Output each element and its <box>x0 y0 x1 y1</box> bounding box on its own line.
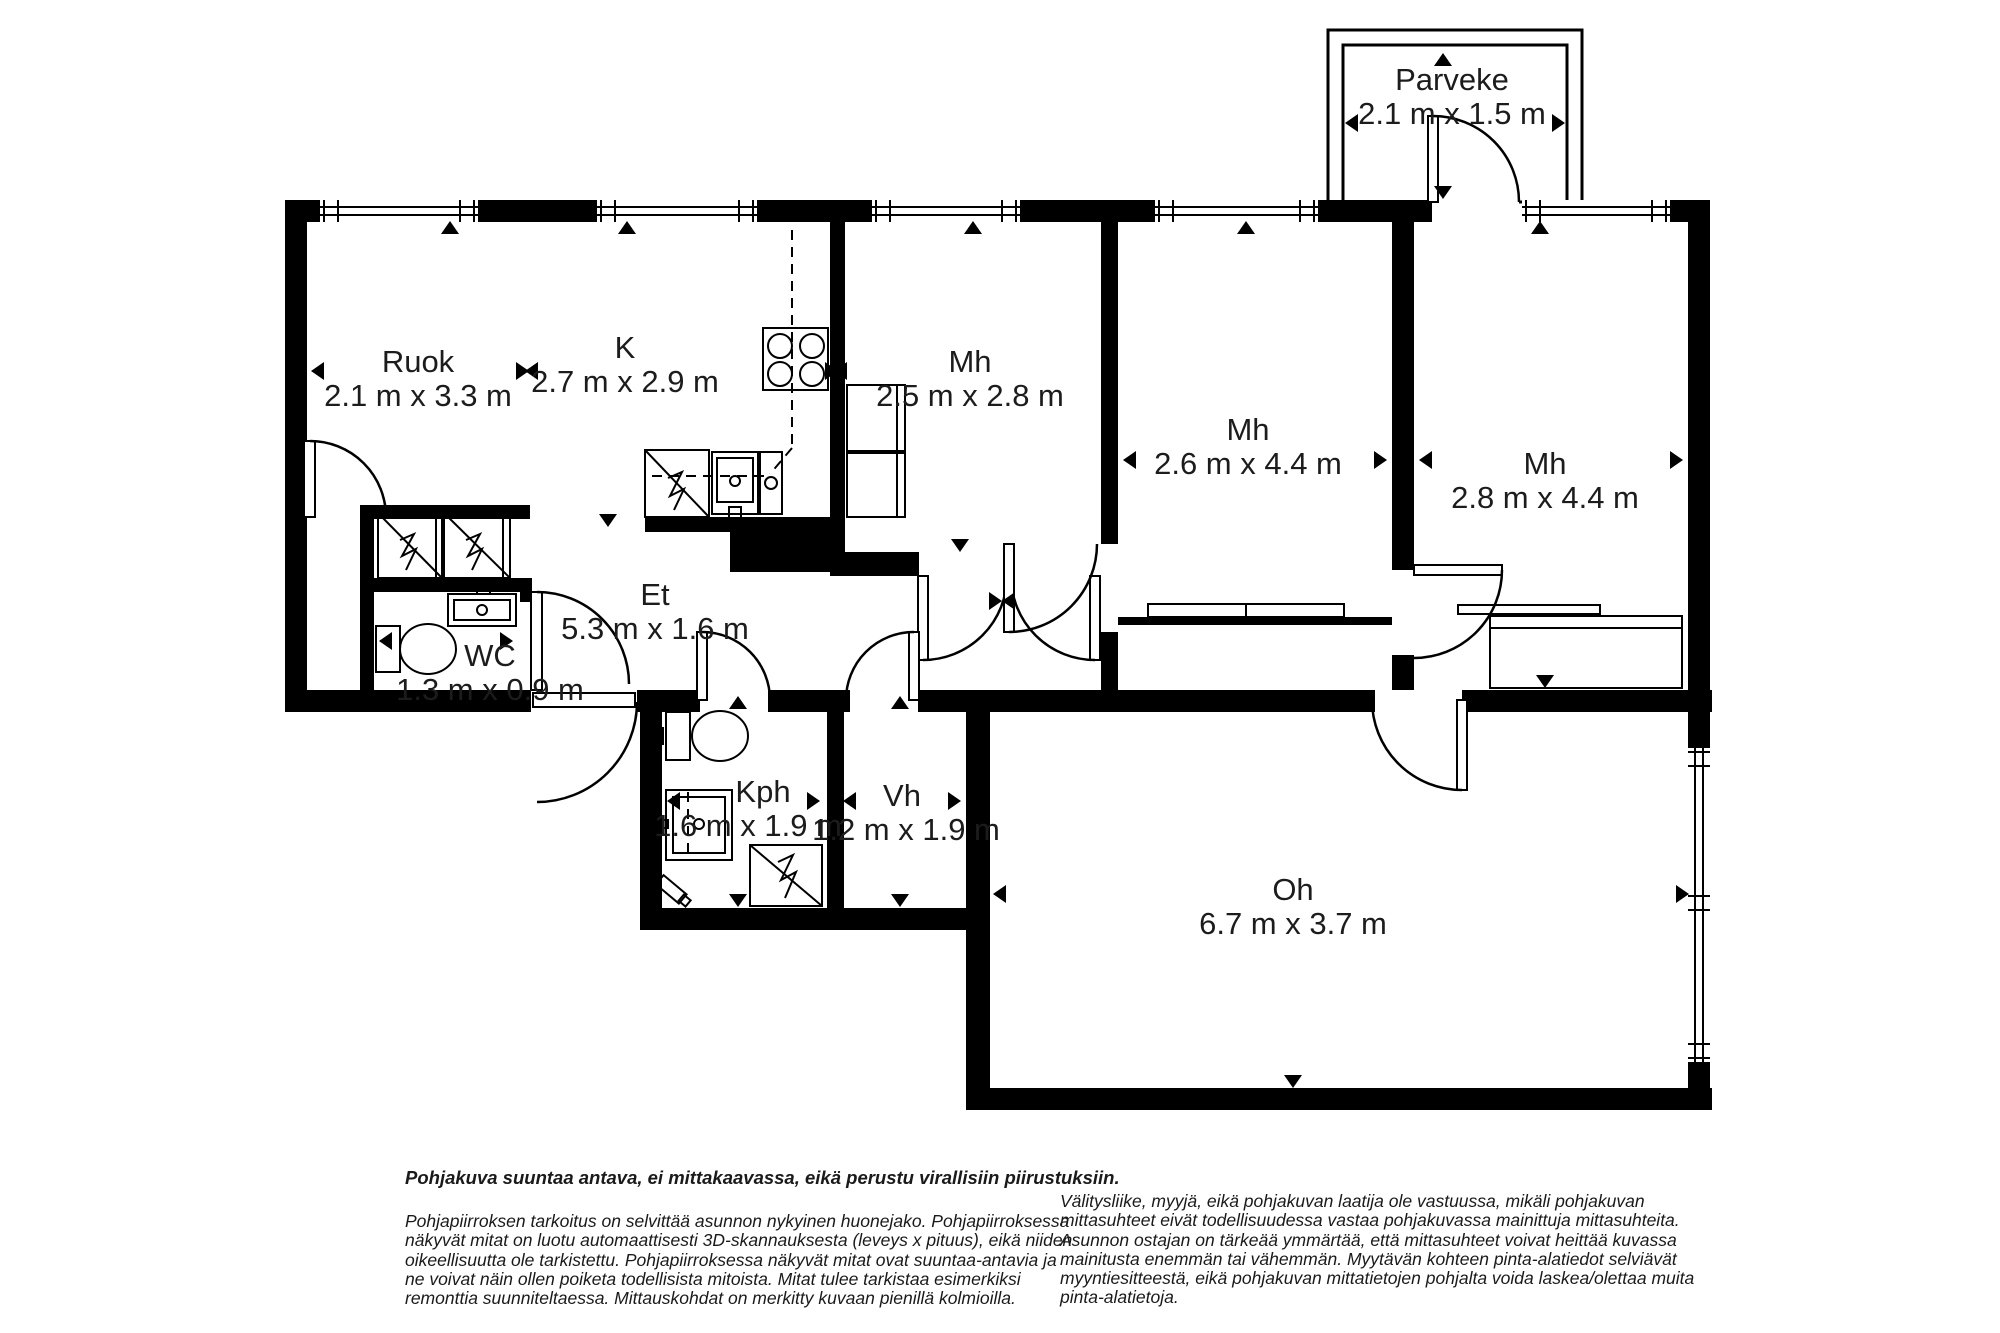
toilet-icon <box>656 711 748 761</box>
svg-text:2.6 m x 4.4 m: 2.6 m x 4.4 m <box>1154 446 1342 481</box>
svg-text:2.7 m x 2.9 m: 2.7 m x 2.9 m <box>531 364 719 399</box>
disclaimer-line: mainitusta enemmän tai vähemmän. Myytävä… <box>1060 1250 1694 1269</box>
room-label-k: K 2.7 m x 2.9 m <box>531 330 719 399</box>
svg-text:Mh: Mh <box>948 344 991 379</box>
svg-text:Vh: Vh <box>883 778 921 813</box>
measure-triangle-icon <box>599 514 617 527</box>
measure-triangle-icon <box>1345 114 1358 132</box>
disclaimer-line: myyntiesitteestä, eikä pohjakuvan mittat… <box>1060 1269 1694 1288</box>
window <box>597 200 757 222</box>
disclaimer-line: Pohjapiirroksen tarkoitus on selvittää a… <box>405 1212 1072 1231</box>
disclaimer-line: remonttia suunniteltaessa. Mittauskohdat… <box>405 1289 1072 1308</box>
kitchen-sink-icon <box>712 452 758 527</box>
measure-triangle-icon <box>1237 221 1255 234</box>
measure-triangle-icon <box>964 221 982 234</box>
balcony-door-opening <box>1432 200 1519 222</box>
measure-triangle-icon <box>1531 221 1549 234</box>
window <box>872 200 1020 222</box>
dishwasher-icon <box>760 452 782 514</box>
measure-triangle-icon <box>843 792 856 810</box>
svg-text:Et: Et <box>640 577 670 612</box>
floorplan-page: Parveke 2.1 m x 1.5 m Ruok 2.1 m x 3.3 m… <box>0 0 2000 1333</box>
svg-text:WC: WC <box>464 638 516 673</box>
measure-triangle-icon <box>1374 451 1387 469</box>
measure-triangle-icon <box>1123 451 1136 469</box>
window <box>1155 200 1318 222</box>
desk-icon <box>1148 604 1344 617</box>
door-vh <box>846 632 919 700</box>
floorplan-drawing: Parveke 2.1 m x 1.5 m Ruok 2.1 m x 3.3 m… <box>0 0 2000 1333</box>
room-label-ruok: Ruok 2.1 m x 3.3 m <box>324 344 512 413</box>
svg-text:Mh: Mh <box>1523 446 1566 481</box>
svg-text:1.2 m x 1.9 m: 1.2 m x 1.9 m <box>812 812 1000 847</box>
svg-text:Parveke: Parveke <box>1395 62 1509 97</box>
measure-triangle-icon <box>729 696 747 709</box>
door-entrance <box>533 693 637 802</box>
svg-text:K: K <box>615 330 636 365</box>
svg-text:2.8 m x 4.4 m: 2.8 m x 4.4 m <box>1451 480 1639 515</box>
closet-icon <box>444 513 510 578</box>
svg-text:Oh: Oh <box>1272 872 1313 907</box>
measure-triangle-icon <box>729 894 747 907</box>
svg-text:6.7 m x 3.7 m: 6.7 m x 3.7 m <box>1199 906 1387 941</box>
closet-icon <box>378 513 442 578</box>
stove-icon <box>763 328 828 390</box>
measure-triangle-icon <box>379 632 392 650</box>
measure-triangle-icon <box>948 792 961 810</box>
measure-triangle-icon <box>1284 1075 1302 1088</box>
room-label-mh-middle: Mh 2.6 m x 4.4 m <box>1154 412 1342 481</box>
disclaimer-line: pinta-alatietoja. <box>1060 1288 1694 1307</box>
disclaimer-line: ne voivat näin ollen poiketa todellisist… <box>405 1270 1072 1289</box>
room-label-mh-small: Mh 2.5 m x 2.8 m <box>876 344 1064 413</box>
measure-triangle-icon <box>891 894 909 907</box>
measure-triangle-icon <box>441 221 459 234</box>
window-right-wall <box>1688 748 1710 1062</box>
measure-triangle-icon <box>311 362 324 380</box>
disclaimer-line: mittasuhteet eivät todellisuudessa vasta… <box>1060 1211 1694 1230</box>
measure-triangle-icon <box>951 539 969 552</box>
shower-icon <box>750 845 822 906</box>
measure-triangle-icon <box>1670 451 1683 469</box>
disclaimer-left-block: Pohjapiirroksen tarkoitus on selvittää a… <box>405 1212 1072 1308</box>
svg-text:2.1 m x 3.3 m: 2.1 m x 3.3 m <box>324 378 512 413</box>
measure-triangle-icon <box>1536 675 1554 688</box>
disclaimer-line: näkyvät mitat on luotu automaattisesti 3… <box>405 1231 1072 1250</box>
svg-text:Kph: Kph <box>735 774 790 809</box>
fridge-icon <box>645 450 709 517</box>
door-oh <box>1372 700 1467 790</box>
door-kitchen-hall <box>918 576 1007 660</box>
measure-triangle-icon <box>1419 451 1432 469</box>
desk-icon <box>1458 605 1682 688</box>
svg-text:Ruok: Ruok <box>382 344 455 379</box>
room-label-wc: WC 1.3 m x 0.9 m <box>396 638 584 707</box>
door-mh-middle <box>1004 544 1097 632</box>
svg-text:1.3 m x 0.9 m: 1.3 m x 0.9 m <box>396 672 584 707</box>
room-label-mh-right: Mh 2.8 m x 4.4 m <box>1451 446 1639 515</box>
room-label-oh: Oh 6.7 m x 3.7 m <box>1199 872 1387 941</box>
window <box>320 200 478 222</box>
disclaimer-right-block: Välitysliike, myyjä, eikä pohjakuvan laa… <box>1060 1192 1694 1308</box>
disclaimer-line: Välitysliike, myyjä, eikä pohjakuvan laa… <box>1060 1192 1694 1211</box>
disclaimer-bold-line: Pohjakuva suuntaa antava, ei mittakaavas… <box>405 1168 1120 1187</box>
measure-triangle-icon <box>618 221 636 234</box>
measure-triangle-icon <box>516 362 529 380</box>
svg-text:2.1 m x 1.5 m: 2.1 m x 1.5 m <box>1358 96 1546 131</box>
disclaimer-line: oikeellisuutta ole tarkistettu. Pohjapii… <box>405 1251 1072 1270</box>
measure-triangle-icon <box>993 885 1006 903</box>
svg-text:Mh: Mh <box>1226 412 1269 447</box>
measure-triangle-icon <box>1552 114 1565 132</box>
toilet-icon <box>366 624 456 674</box>
measure-triangle-icon <box>1676 885 1689 903</box>
room-label-parveke: Parveke 2.1 m x 1.5 m <box>1358 62 1546 131</box>
disclaimer-line: Asunnon ostajan on tärkeää ymmärtää, ett… <box>1060 1231 1694 1250</box>
svg-text:2.5 m x 2.8 m: 2.5 m x 2.8 m <box>876 378 1064 413</box>
room-label-et: Et 5.3 m x 1.6 m <box>561 577 749 646</box>
window <box>1522 200 1670 222</box>
measure-triangle-icon <box>891 696 909 709</box>
svg-text:5.3 m x 1.6 m: 5.3 m x 1.6 m <box>561 611 749 646</box>
